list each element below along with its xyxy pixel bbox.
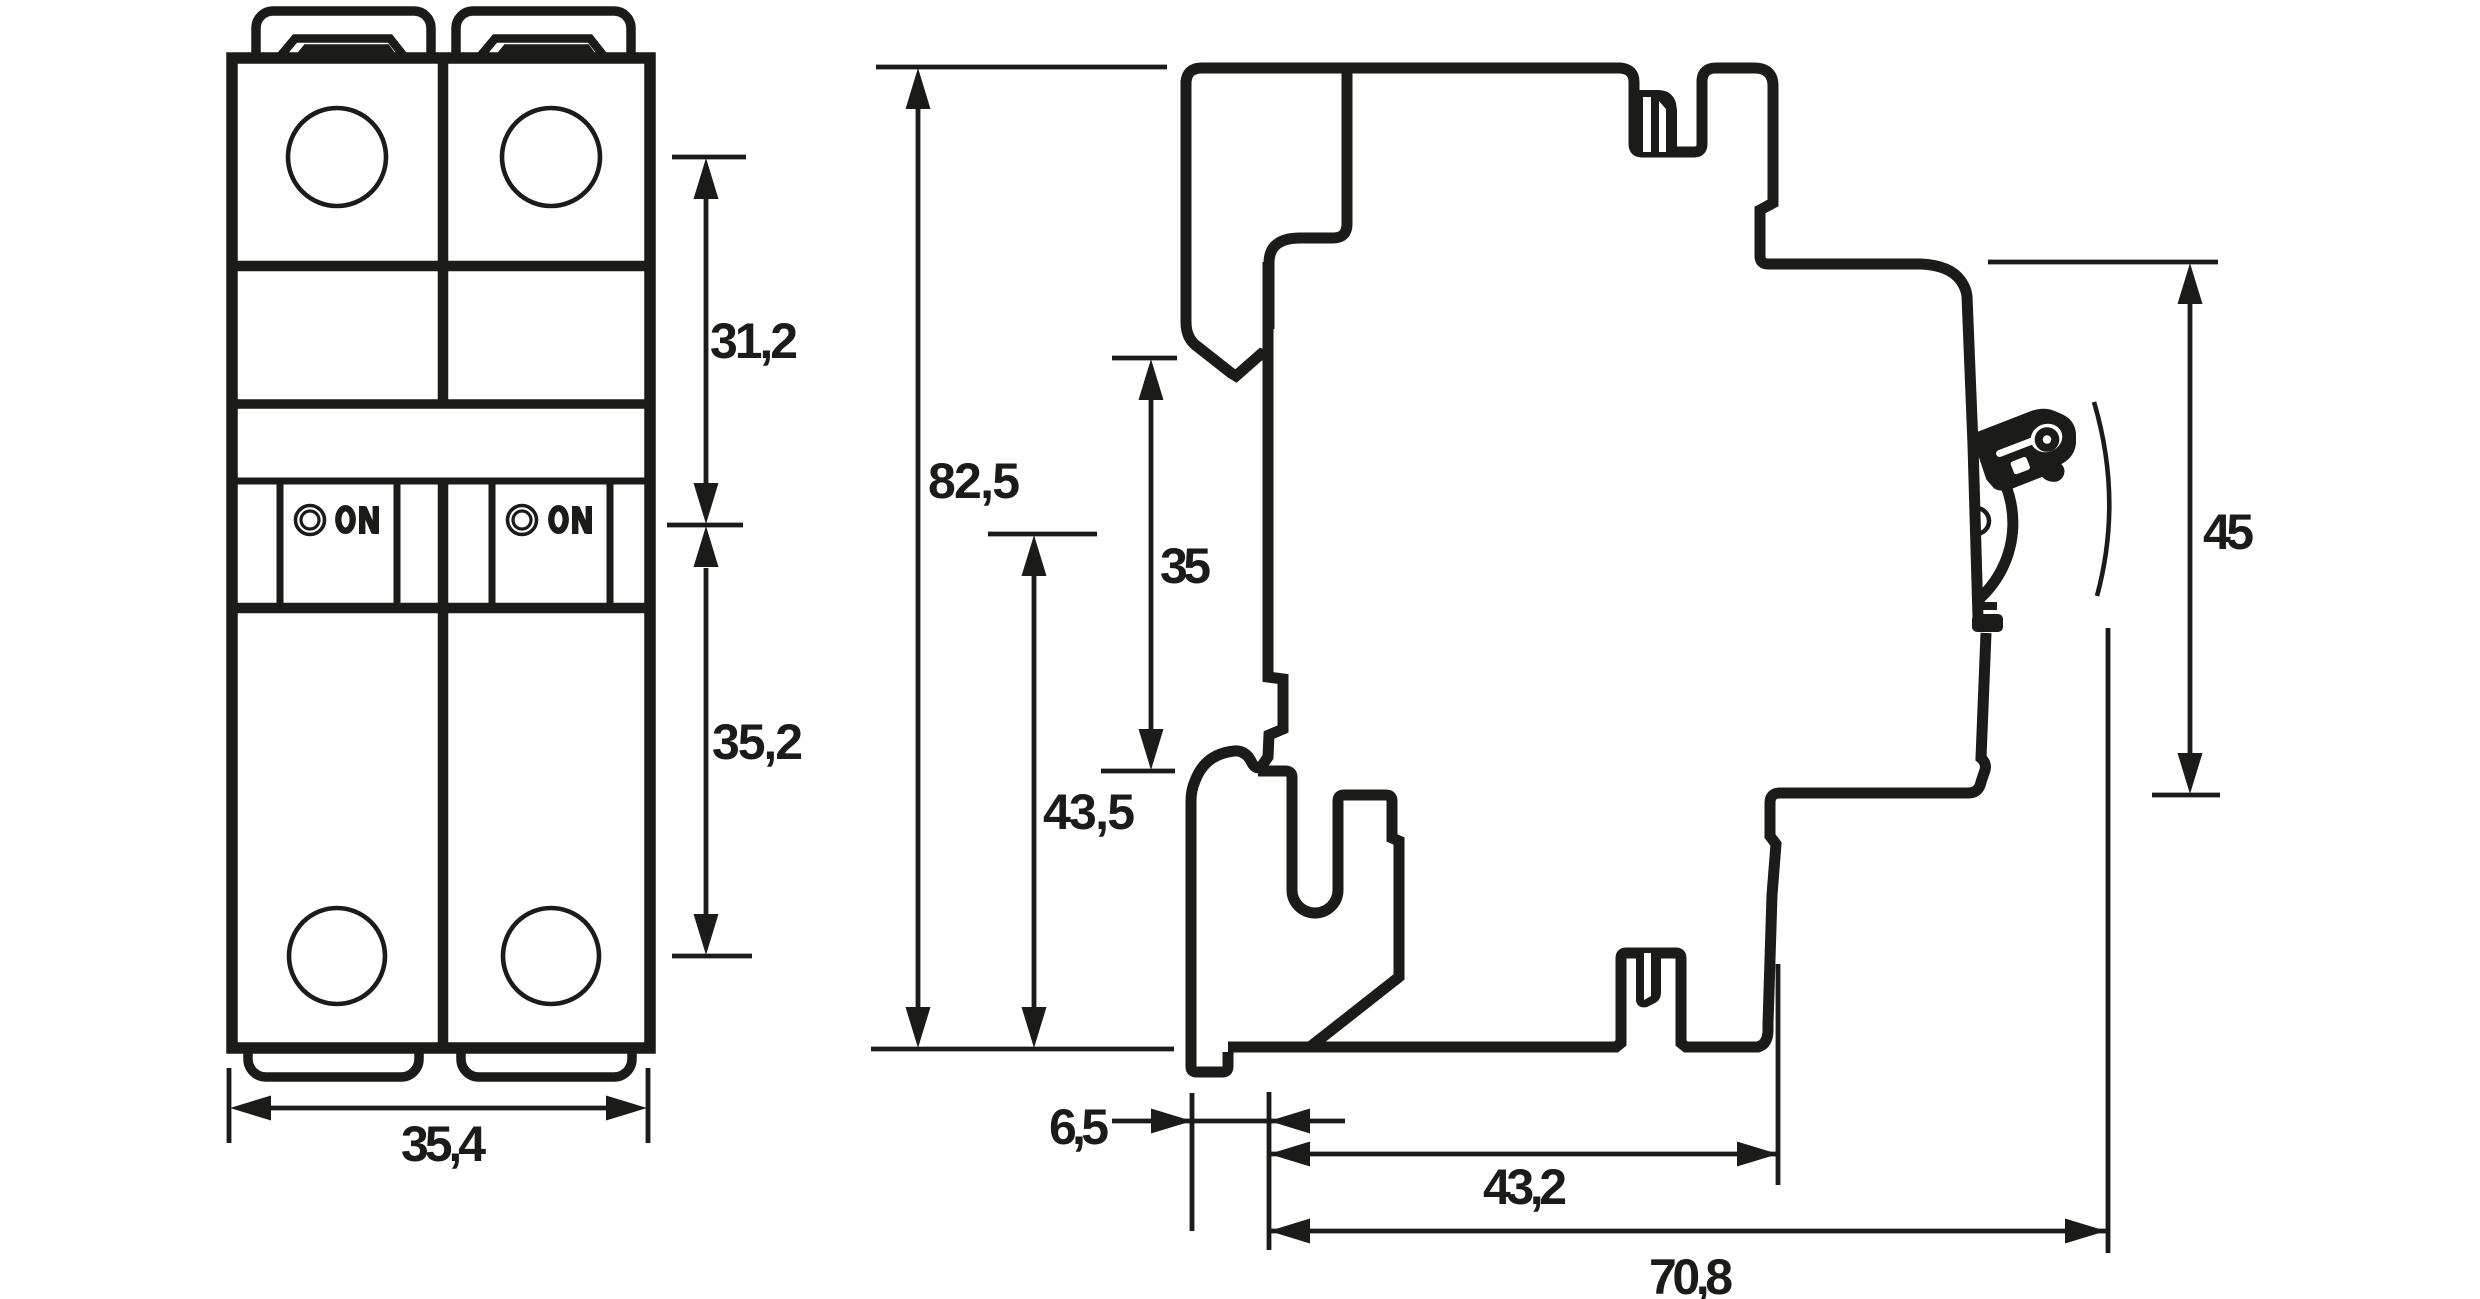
- svg-text:43,2: 43,2: [1483, 1159, 1567, 1215]
- svg-text:45: 45: [2203, 504, 2254, 560]
- svg-text:6,5: 6,5: [1049, 1099, 1109, 1155]
- svg-text:82,5: 82,5: [928, 453, 1020, 509]
- svg-text:35,4: 35,4: [401, 1116, 486, 1172]
- svg-text:35,2: 35,2: [712, 714, 803, 770]
- svg-text:31,2: 31,2: [710, 313, 798, 369]
- svg-text:70,8: 70,8: [1649, 1249, 1733, 1299]
- svg-text:35: 35: [1160, 538, 1211, 594]
- svg-text:43,5: 43,5: [1043, 784, 1135, 840]
